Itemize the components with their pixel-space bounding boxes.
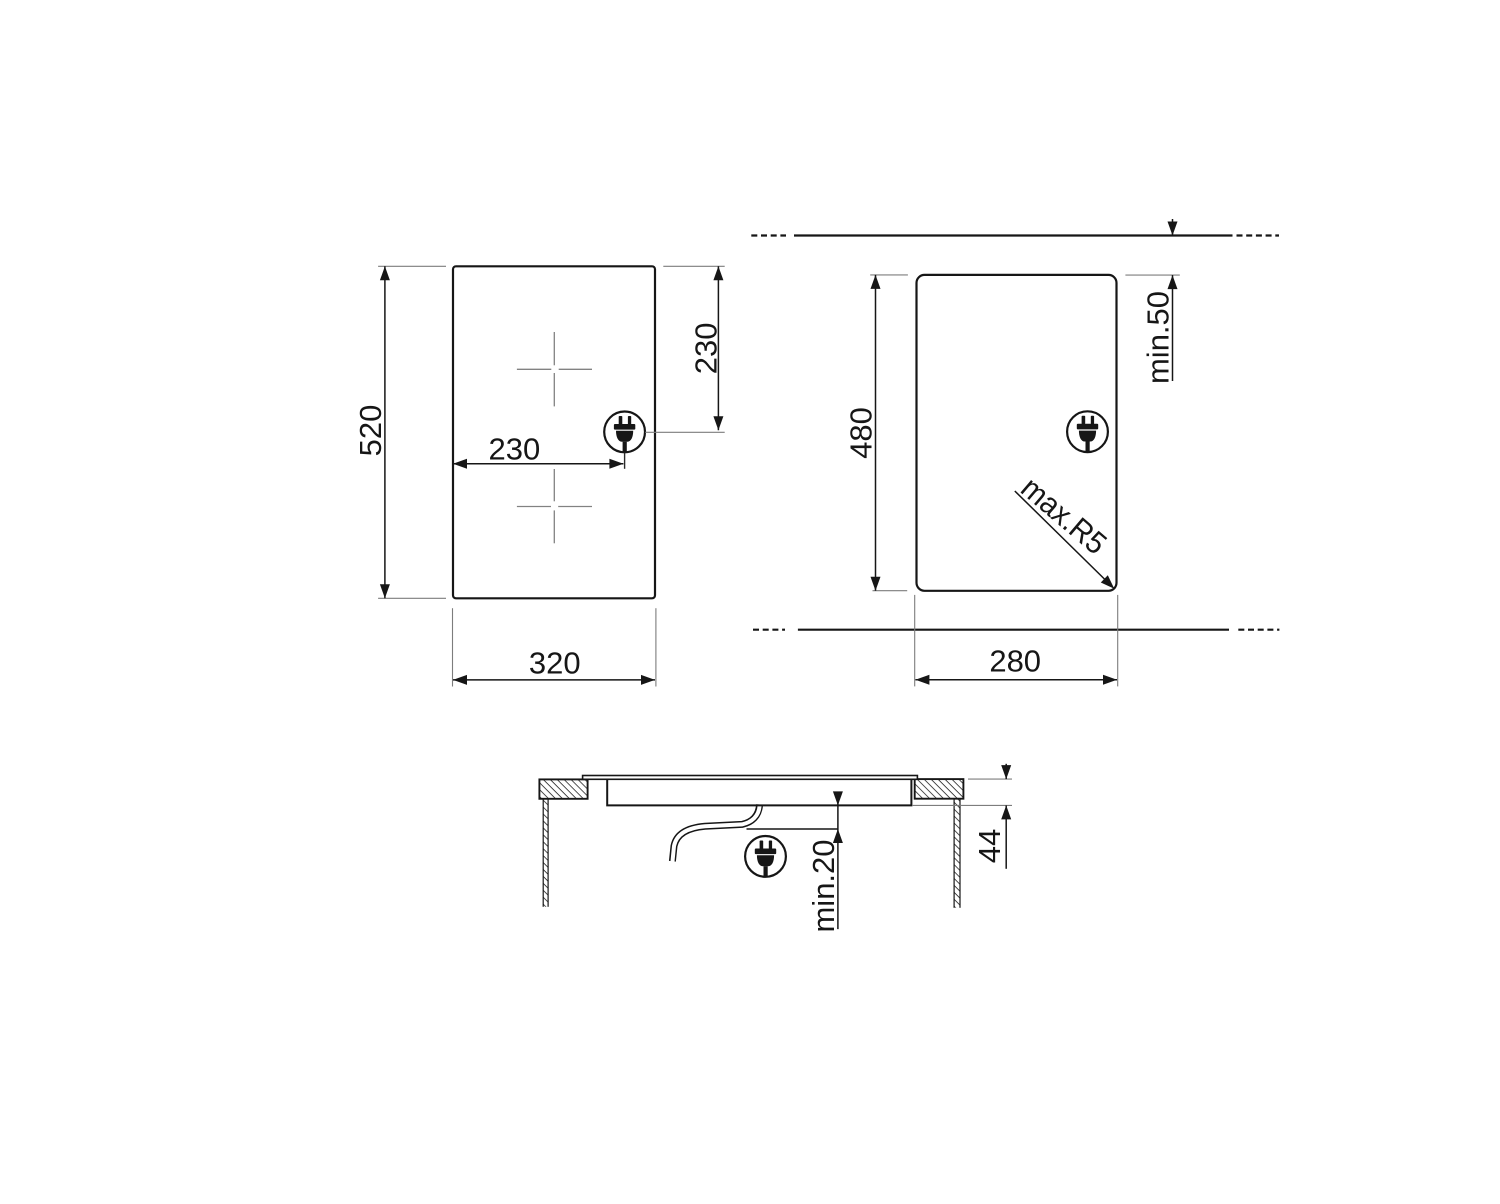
svg-text:min.50: min.50 (1141, 291, 1176, 384)
svg-text:44: 44 (972, 829, 1007, 863)
svg-text:520: 520 (353, 405, 388, 457)
svg-text:230: 230 (489, 432, 541, 467)
svg-text:320: 320 (529, 646, 581, 681)
svg-text:min.20: min.20 (806, 839, 841, 932)
svg-text:230: 230 (688, 323, 723, 375)
svg-text:max.R5: max.R5 (1014, 470, 1113, 561)
svg-text:480: 480 (844, 407, 879, 459)
svg-text:280: 280 (989, 644, 1041, 679)
